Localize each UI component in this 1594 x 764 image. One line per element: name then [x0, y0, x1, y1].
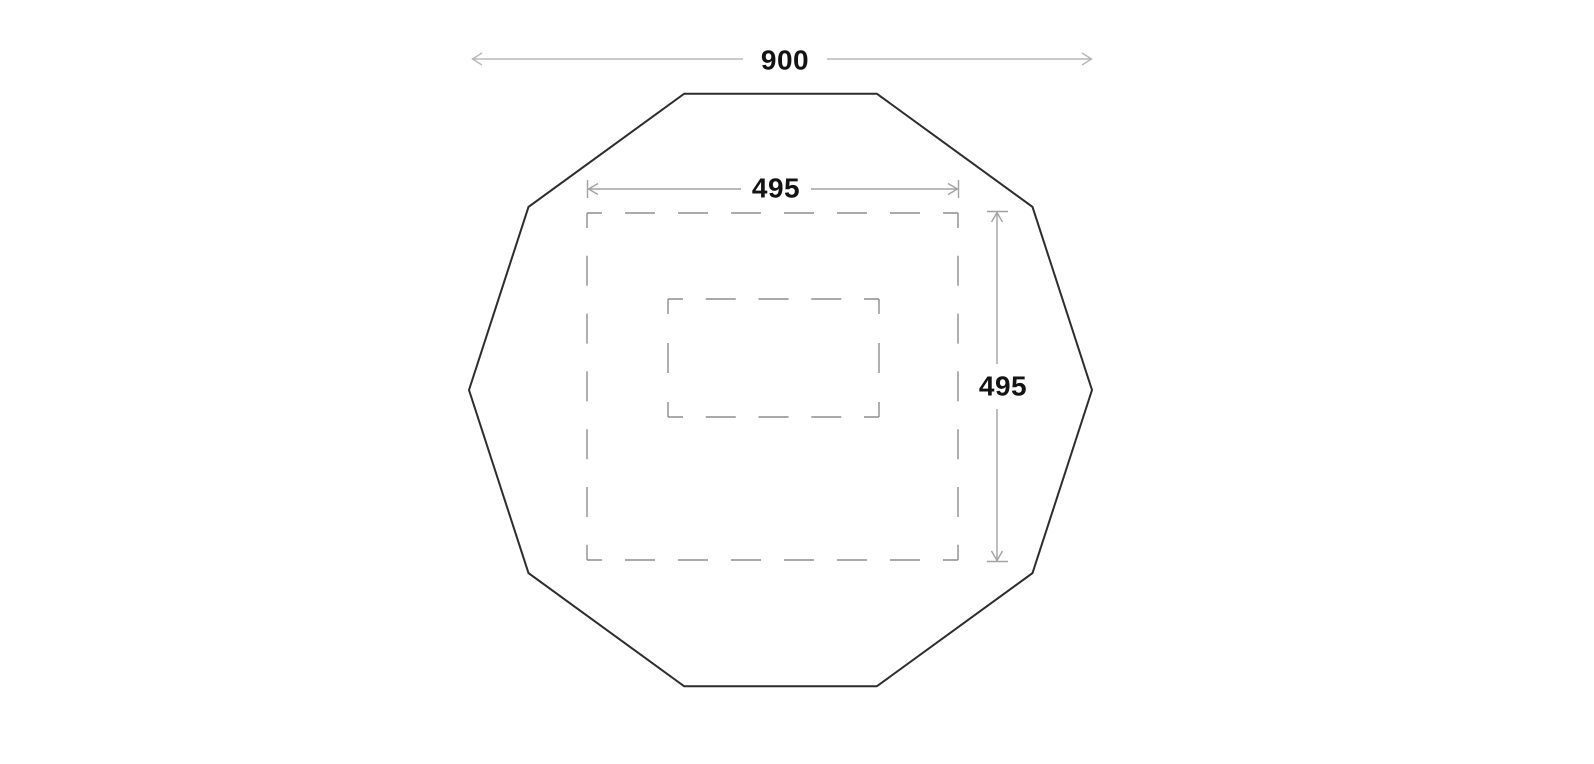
dimension-diagram: 900 495 495	[0, 0, 1594, 764]
overall-width-label: 900	[761, 45, 809, 76]
center-dashed-rect	[668, 299, 879, 417]
inner-width-dimension: 495	[588, 173, 959, 204]
inner-dashed-square	[587, 213, 958, 560]
inner-width-label: 495	[752, 173, 800, 204]
inner-height-label: 495	[979, 371, 1027, 402]
drawing-canvas: 900 495 495	[0, 0, 1594, 764]
overall-width-dimension: 900	[472, 45, 1092, 76]
inner-height-dimension: 495	[979, 212, 1027, 562]
